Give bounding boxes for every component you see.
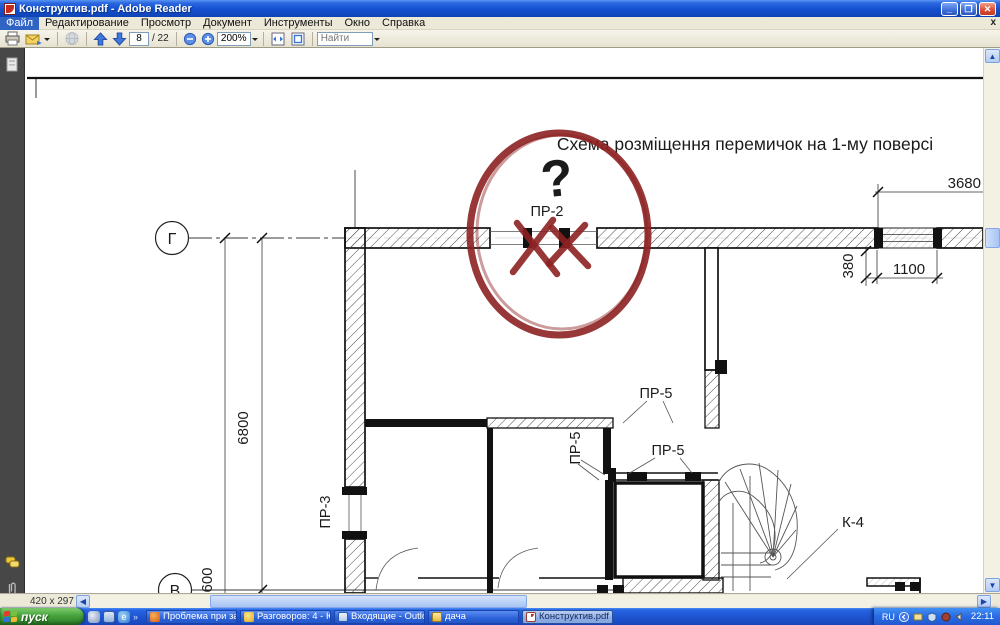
tray-app-icon[interactable]: [913, 612, 923, 622]
chat-icon: [244, 612, 254, 622]
menu-document[interactable]: Документ: [197, 17, 258, 30]
minimize-button[interactable]: _: [941, 2, 958, 16]
internet-explorer-icon[interactable]: e: [118, 611, 130, 623]
status-bar: 420 x 297 мм ◀ ▶: [0, 593, 1000, 608]
browser-quicklaunch-icon[interactable]: [88, 611, 100, 623]
menu-file[interactable]: Файл: [0, 17, 39, 30]
tray-shield-icon[interactable]: [927, 612, 937, 622]
page-total-label: / 22: [152, 33, 169, 44]
taskbar-clock: 22:11: [971, 611, 994, 622]
task-label: Конструктив.pdf - A...: [539, 611, 613, 622]
start-label: пуск: [21, 610, 48, 624]
fit-width-icon: [270, 32, 286, 46]
restore-button[interactable]: ❐: [960, 2, 977, 16]
search-dropdown-caret[interactable]: [374, 38, 380, 44]
adobe-reader-icon: [531, 614, 534, 617]
window-title: Конструктив.pdf - Adobe Reader: [19, 3, 941, 15]
email-icon: [25, 32, 43, 46]
sheet-frame: [27, 78, 983, 98]
floor-plan-drawing: Схема розміщення перемичок на 1-му повер…: [25, 48, 983, 593]
previous-page-button[interactable]: [91, 30, 110, 47]
close-button[interactable]: ✕: [979, 2, 996, 16]
zoom-in-button[interactable]: [199, 30, 217, 47]
dim-3680: 3680: [948, 175, 981, 192]
adobe-reader-window: Конструктив.pdf - Adobe Reader _ ❐ ✕ Фай…: [0, 0, 1000, 625]
tray-update-icon[interactable]: [941, 612, 951, 622]
scroll-down-icon[interactable]: ▼: [985, 578, 1000, 592]
axis-label-bottom: В: [170, 583, 181, 593]
fit-page-button[interactable]: [288, 30, 308, 47]
taskbar-button-messenger[interactable]: Разговоров: 4 - Юля...: [240, 610, 331, 624]
menu-help[interactable]: Справка: [376, 17, 431, 30]
fit-width-button[interactable]: [268, 30, 288, 47]
stairs: [719, 463, 797, 591]
menu-view[interactable]: Просмотр: [135, 17, 197, 30]
fit-page-icon: [290, 32, 306, 46]
outlook-icon: [338, 612, 348, 622]
volume-icon[interactable]: [955, 612, 965, 622]
pdf-page-canvas[interactable]: Схема розміщення перемичок на 1-му повер…: [25, 48, 983, 593]
horizontal-scrollbar[interactable]: ◀ ▶: [76, 595, 992, 608]
printer-icon: [4, 31, 21, 46]
vertical-scroll-thumb[interactable]: [985, 228, 1000, 248]
task-label: Разговоров: 4 - Юля...: [257, 611, 331, 622]
zoom-out-button[interactable]: [181, 30, 199, 47]
pdf-app-icon: [4, 3, 16, 15]
axis-label-top: Г: [168, 231, 177, 248]
system-tray: RU 22:11: [874, 608, 1000, 625]
quick-launch: e »: [88, 611, 138, 623]
label-pr5-top: ПР-5: [640, 386, 673, 402]
start-button[interactable]: пуск: [0, 608, 84, 625]
firefox-icon: [150, 612, 160, 622]
comments-icon: [5, 556, 21, 570]
bottom-right-wall: [867, 578, 920, 593]
menu-edit[interactable]: Редактирование: [39, 17, 135, 30]
zoom-out-icon: [183, 32, 197, 46]
taskbar-button-folder[interactable]: дача: [428, 610, 519, 624]
next-page-button[interactable]: [110, 30, 129, 47]
taskbar-button-adobe-reader[interactable]: Конструктив.pdf - A...: [522, 610, 613, 624]
scroll-right-icon[interactable]: ▶: [977, 595, 991, 608]
hide-icons-chevron[interactable]: [899, 612, 909, 622]
label-k4: К-4: [842, 514, 864, 531]
question-mark-annotation: ?: [538, 149, 576, 210]
horizontal-scroll-thumb[interactable]: [210, 595, 527, 608]
zoom-level-input[interactable]: 200%: [217, 32, 251, 46]
arrow-up-icon: [93, 32, 108, 46]
arrow-down-icon: [112, 32, 127, 46]
title-bar: Конструктив.pdf - Adobe Reader _ ❐ ✕: [0, 0, 1000, 17]
interior-walls: [365, 248, 727, 593]
web-capture-button[interactable]: [62, 30, 82, 47]
task-label: Входящие - Outlook ...: [351, 611, 425, 622]
vertical-scrollbar[interactable]: ▲ ▼: [983, 48, 1000, 593]
dim-6800: 6800: [235, 411, 252, 444]
show-desktop-icon[interactable]: [103, 611, 115, 623]
scroll-left-icon[interactable]: ◀: [76, 595, 90, 608]
globe-icon: [64, 31, 80, 46]
comments-panel-button[interactable]: [5, 556, 21, 575]
menu-bar: Файл Редактирование Просмотр Документ Ин…: [0, 17, 1000, 30]
zoom-in-icon: [201, 32, 215, 46]
quicklaunch-overflow-chevron[interactable]: »: [133, 612, 138, 622]
windows-logo-icon: [4, 611, 18, 623]
dim-380: 380: [840, 253, 857, 278]
pages-icon: [5, 57, 19, 73]
page-number-input[interactable]: 8: [129, 32, 149, 46]
top-wall: [345, 228, 983, 248]
email-dropdown-caret[interactable]: [44, 38, 50, 44]
folder-icon: [432, 612, 442, 622]
task-label: дача: [445, 611, 466, 622]
axis-bubbles: Г В: [156, 222, 192, 594]
email-button[interactable]: [23, 30, 53, 47]
menu-window[interactable]: Окно: [338, 17, 376, 30]
windows-taskbar: пуск e » Проблема при загру... Разговоро…: [0, 608, 1000, 625]
menubar-close-icon[interactable]: x: [990, 17, 996, 29]
print-button[interactable]: [2, 30, 23, 47]
scroll-up-icon[interactable]: ▲: [985, 49, 1000, 63]
left-wall: [342, 228, 367, 593]
menu-tools[interactable]: Инструменты: [258, 17, 339, 30]
navigation-pane: [0, 48, 25, 593]
label-pr5-right: ПР-5: [652, 443, 685, 459]
zoom-dropdown-caret[interactable]: [252, 38, 258, 44]
toolbar: 8 / 22 200%: [0, 30, 1000, 48]
dim-1100: 1100: [893, 261, 925, 278]
dim-600: 600: [199, 567, 216, 592]
search-input[interactable]: [317, 32, 373, 46]
language-indicator[interactable]: RU: [882, 612, 895, 622]
label-pr3: ПР-3: [318, 496, 334, 529]
taskbar-button-firefox[interactable]: Проблема при загру...: [146, 610, 237, 624]
pages-panel-button[interactable]: [5, 57, 19, 78]
label-pr5-mid: ПР-5: [568, 432, 584, 465]
taskbar-button-outlook[interactable]: Входящие - Outlook ...: [334, 610, 425, 624]
task-buttons: Проблема при загру... Разговоров: 4 - Юл…: [146, 610, 874, 624]
task-label: Проблема при загру...: [163, 611, 237, 622]
